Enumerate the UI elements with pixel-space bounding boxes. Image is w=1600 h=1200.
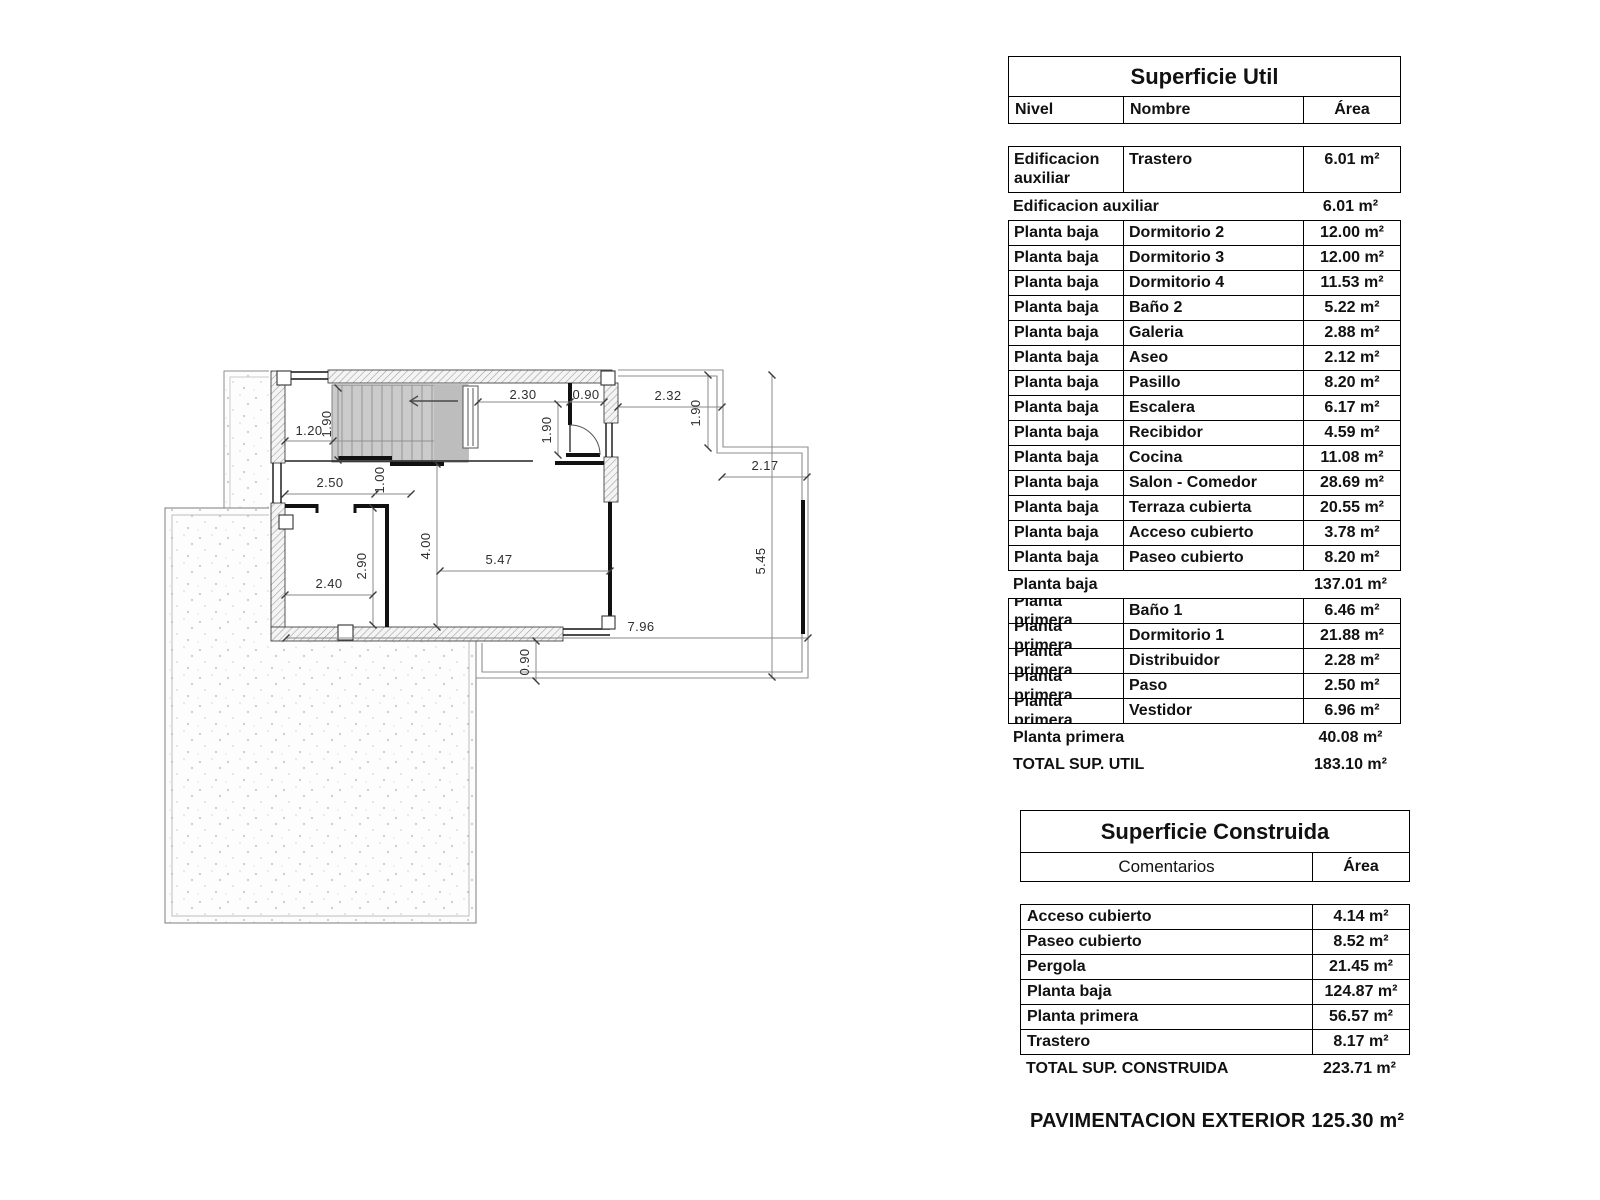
name-cell: Baño 2 [1123,296,1303,320]
level-cell: Planta baja [1009,371,1123,395]
area-cell: 4.14 m² [1312,905,1409,929]
name-cell: Salon - Comedor [1123,471,1303,495]
dim-label: 1.90 [539,417,554,444]
level-cell: Planta primera [1009,599,1123,623]
column-header-nivel: Nivel [1009,97,1123,123]
area-cell: 5.22 m² [1303,296,1400,320]
area-cell: 8.20 m² [1303,371,1400,395]
summary-area: 40.08 m² [1302,729,1399,747]
superficie-util-header: Superficie Util Nivel Nombre Área [1008,56,1401,124]
table-row: Planta bajaCocina11.08 m² [1008,445,1401,471]
table-row: Planta bajaAseo2.12 m² [1008,345,1401,371]
area-cell: 4.59 m² [1303,421,1400,445]
level-cell: Planta baja [1009,471,1123,495]
dim-label: 5.47 [486,552,513,567]
summary-label: Planta baja [1008,576,1302,594]
pavimentacion-exterior-note: PAVIMENTACION EXTERIOR 125.30 m² [1030,1110,1404,1133]
name-cell: Dormitorio 3 [1123,246,1303,270]
area-cell: 20.55 m² [1303,496,1400,520]
summary-row: Edificacion auxiliar6.01 m² [1008,193,1401,221]
name-cell: Paso [1123,674,1303,698]
area-cell: 8.20 m² [1303,546,1400,570]
table-row: Planta primeraDormitorio 121.88 m² [1008,623,1401,649]
table-row: Paseo cubierto8.52 m² [1020,929,1410,955]
level-cell: Planta baja [1009,321,1123,345]
area-cell: 21.88 m² [1303,624,1400,648]
level-cell: Planta baja [1009,496,1123,520]
name-cell: Trastero [1123,147,1303,192]
name-cell: Paseo cubierto [1123,546,1303,570]
table-row: Planta bajaSalon - Comedor28.69 m² [1008,470,1401,496]
table-row: Planta bajaDormitorio 411.53 m² [1008,270,1401,296]
summary-label: TOTAL SUP. UTIL [1008,756,1302,774]
dim-label: 2.50 [317,475,344,490]
column-header-nombre: Nombre [1123,97,1303,123]
level-cell: Planta baja [1009,396,1123,420]
table-row: Planta baja124.87 m² [1020,979,1410,1005]
name-cell: Pasillo [1123,371,1303,395]
comment-cell: Pergola [1021,955,1312,979]
level-cell: Planta baja [1009,221,1123,245]
dim-label: 2.90 [354,553,369,580]
level-cell: Planta baja [1009,271,1123,295]
area-cell: 6.96 m² [1303,699,1400,723]
area-cell: 8.52 m² [1312,930,1409,954]
glass-walls [610,500,803,634]
area-cell: 11.08 m² [1303,446,1400,470]
dim-label: 7.96 [628,619,655,634]
name-cell: Acceso cubierto [1123,521,1303,545]
dim-label: 1.00 [372,467,387,494]
name-cell: Vestidor [1123,699,1303,723]
area-cell: 12.00 m² [1303,246,1400,270]
table-row: Planta bajaPaseo cubierto8.20 m² [1008,545,1401,571]
dim-label: 0.90 [573,387,600,402]
total-row: TOTAL SUP. CONSTRUIDA223.71 m² [1020,1055,1410,1082]
table-row: Planta bajaGaleria2.88 m² [1008,320,1401,346]
area-cell: 11.53 m² [1303,271,1400,295]
staircase [332,385,478,462]
comment-cell: Acceso cubierto [1021,905,1312,929]
superficie-util-title: Superficie Util [1009,57,1400,97]
dim-label: 2.17 [752,458,779,473]
name-cell: Distribuidor [1123,649,1303,673]
comment-cell: TOTAL SUP. CONSTRUIDA [1020,1060,1311,1078]
level-cell: Planta baja [1009,446,1123,470]
superficie-construida-header: Superficie Construida Comentarios Área [1020,810,1410,882]
level-cell: Planta baja [1009,546,1123,570]
table-row: Planta bajaPasillo8.20 m² [1008,370,1401,396]
superficie-construida-columns: Comentarios Área [1021,853,1409,881]
column-header-area: Área [1312,853,1409,881]
area-cell: 6.01 m² [1303,147,1400,192]
table-row: Edificacion auxiliarTrastero6.01 m² [1008,146,1401,193]
level-cell: Edificacion auxiliar [1009,147,1123,192]
table-row: Planta primeraDistribuidor2.28 m² [1008,648,1401,674]
area-cell: 8.17 m² [1312,1030,1409,1054]
summary-area: 6.01 m² [1302,198,1399,216]
comment-cell: Trastero [1021,1030,1312,1054]
table-row: Planta bajaEscalera6.17 m² [1008,395,1401,421]
table-row: Planta primera56.57 m² [1020,1004,1410,1030]
area-cell: 124.87 m² [1312,980,1409,1004]
table-row: Planta bajaTerraza cubierta20.55 m² [1008,495,1401,521]
table-row: Planta primeraPaso2.50 m² [1008,673,1401,699]
area-cell: 3.78 m² [1303,521,1400,545]
table-row: Planta primeraVestidor6.96 m² [1008,698,1401,724]
column-header-area: Área [1303,97,1400,123]
level-cell: Planta baja [1009,521,1123,545]
table-row: Acceso cubierto4.14 m² [1020,904,1410,930]
dim-label: 2.32 [655,388,682,403]
level-cell: Planta baja [1009,246,1123,270]
name-cell: Dormitorio 1 [1123,624,1303,648]
table-row: Planta primeraBaño 16.46 m² [1008,598,1401,624]
floor-plan: 1.20 1.90 2.30 0.90 1.90 2.32 1.90 2.17 … [0,0,900,1000]
area-cell: 223.71 m² [1311,1060,1408,1078]
superficie-construida-title: Superficie Construida [1021,811,1409,853]
summary-label: Edificacion auxiliar [1008,198,1302,216]
summary-area: 183.10 m² [1302,756,1399,774]
area-cell: 6.17 m² [1303,396,1400,420]
table-row: Planta bajaBaño 25.22 m² [1008,295,1401,321]
table-row: Pergola21.45 m² [1020,954,1410,980]
table-row: Planta bajaDormitorio 212.00 m² [1008,220,1401,246]
summary-label: Planta primera [1008,729,1302,747]
name-cell: Dormitorio 2 [1123,221,1303,245]
name-cell: Baño 1 [1123,599,1303,623]
dim-label: 2.30 [510,387,537,402]
dim-label: 1.90 [319,411,334,438]
dim-label: 1.90 [688,400,703,427]
table-row: Planta bajaDormitorio 312.00 m² [1008,245,1401,271]
name-cell: Recibidor [1123,421,1303,445]
name-cell: Aseo [1123,346,1303,370]
area-cell: 2.88 m² [1303,321,1400,345]
area-cell: 21.45 m² [1312,955,1409,979]
area-cell: 2.28 m² [1303,649,1400,673]
level-cell: Planta primera [1009,674,1123,698]
dim-label: 5.45 [753,548,768,575]
summary-row: Planta baja137.01 m² [1008,571,1401,599]
level-cell: Planta primera [1009,624,1123,648]
terrain-strip [224,371,275,511]
area-cell: 6.46 m² [1303,599,1400,623]
table-row: Trastero8.17 m² [1020,1029,1410,1055]
name-cell: Cocina [1123,446,1303,470]
area-cell: 28.69 m² [1303,471,1400,495]
column-header-comentarios: Comentarios [1021,853,1312,881]
level-cell: Planta baja [1009,421,1123,445]
area-cell: 2.12 m² [1303,346,1400,370]
level-cell: Planta baja [1009,346,1123,370]
level-cell: Planta primera [1009,699,1123,723]
name-cell: Dormitorio 4 [1123,271,1303,295]
table-row: Planta bajaRecibidor4.59 m² [1008,420,1401,446]
area-cell: 12.00 m² [1303,221,1400,245]
summary-row: Planta primera40.08 m² [1008,724,1401,752]
level-cell: Planta primera [1009,649,1123,673]
name-cell: Escalera [1123,396,1303,420]
superficie-util-columns: Nivel Nombre Área [1009,97,1400,123]
name-cell: Galeria [1123,321,1303,345]
dim-label: 2.40 [316,576,343,591]
table-row: Planta bajaAcceso cubierto3.78 m² [1008,520,1401,546]
summary-area: 137.01 m² [1302,576,1399,594]
comment-cell: Planta baja [1021,980,1312,1004]
area-cell: 56.57 m² [1312,1005,1409,1029]
area-cell: 2.50 m² [1303,674,1400,698]
level-cell: Planta baja [1009,296,1123,320]
comment-cell: Planta primera [1021,1005,1312,1029]
name-cell: Terraza cubierta [1123,496,1303,520]
dim-label: 0.90 [517,649,532,676]
comment-cell: Paseo cubierto [1021,930,1312,954]
superficie-construida-rows: Acceso cubierto4.14 m²Paseo cubierto8.52… [1020,905,1410,1082]
total-row: TOTAL SUP. UTIL183.10 m² [1008,752,1401,778]
superficie-util-rows: Edificacion auxiliarTrastero6.01 m²Edifi… [1008,147,1401,778]
dim-label: 4.00 [418,533,433,560]
